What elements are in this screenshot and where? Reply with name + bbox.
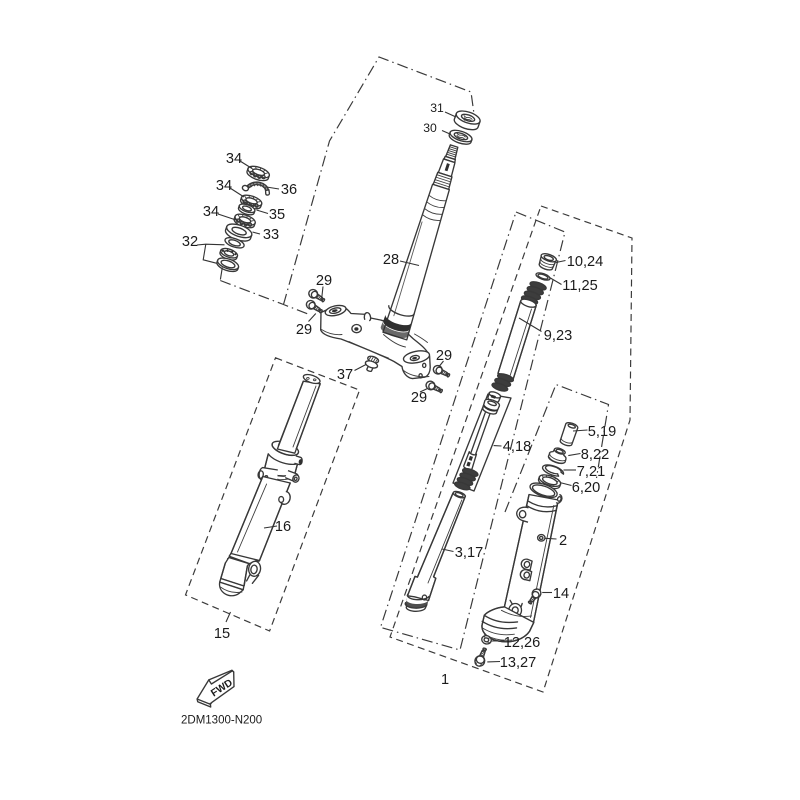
svg-text:29: 29: [436, 348, 452, 364]
svg-text:33: 33: [263, 227, 279, 243]
svg-text:2: 2: [559, 533, 567, 549]
svg-text:28: 28: [383, 252, 399, 268]
svg-text:31: 31: [430, 101, 444, 115]
svg-text:14: 14: [553, 586, 569, 602]
svg-text:4,18: 4,18: [503, 439, 531, 455]
svg-text:35: 35: [269, 207, 285, 223]
svg-text:7,21: 7,21: [577, 464, 605, 480]
svg-text:5,19: 5,19: [588, 424, 616, 440]
svg-text:3,17: 3,17: [455, 545, 483, 561]
svg-text:12,26: 12,26: [504, 635, 541, 651]
svg-text:13,27: 13,27: [500, 655, 537, 671]
svg-text:11,25: 11,25: [562, 278, 597, 294]
svg-text:8,22: 8,22: [581, 447, 609, 463]
svg-text:15: 15: [214, 626, 230, 642]
svg-text:30: 30: [423, 121, 437, 135]
svg-text:32: 32: [182, 234, 198, 250]
svg-text:29: 29: [316, 273, 332, 289]
svg-text:37: 37: [337, 367, 353, 383]
svg-text:34: 34: [203, 204, 219, 220]
svg-text:29: 29: [296, 322, 312, 338]
svg-text:10,24: 10,24: [567, 254, 604, 270]
svg-text:34: 34: [216, 178, 232, 194]
svg-text:6,20: 6,20: [572, 480, 600, 496]
svg-text:34: 34: [226, 151, 242, 167]
svg-text:9,23: 9,23: [544, 328, 572, 344]
svg-text:36: 36: [281, 182, 297, 198]
svg-text:1: 1: [441, 672, 449, 688]
svg-text:16: 16: [275, 519, 291, 535]
svg-text:29: 29: [411, 390, 427, 406]
svg-text:2DM1300-N200: 2DM1300-N200: [181, 714, 262, 726]
